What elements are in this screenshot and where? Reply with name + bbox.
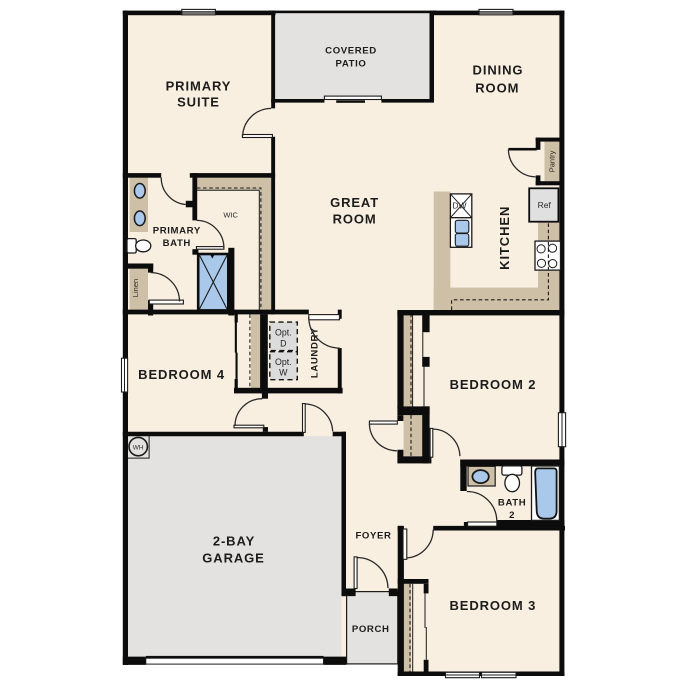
svg-text:DINING: DINING [473,63,524,78]
svg-text:SUITE: SUITE [177,95,220,110]
svg-text:BEDROOM 2: BEDROOM 2 [450,377,537,392]
svg-text:Linen: Linen [131,279,140,297]
svg-text:Opt.: Opt. [275,357,292,367]
svg-text:WIC: WIC [223,210,238,219]
svg-text:PATIO: PATIO [336,59,367,70]
svg-text:GARAGE: GARAGE [202,551,264,566]
svg-text:W: W [279,367,288,377]
svg-text:GREAT: GREAT [330,195,379,210]
svg-text:Pantry: Pantry [548,150,557,172]
svg-text:LAUNDRY: LAUNDRY [310,327,321,378]
svg-text:D: D [280,339,286,349]
svg-text:BATH: BATH [163,238,191,249]
svg-text:BEDROOM 3: BEDROOM 3 [449,598,536,613]
svg-text:COVERED: COVERED [325,46,377,57]
svg-text:PRIMARY: PRIMARY [166,79,232,94]
svg-text:2: 2 [509,510,515,521]
svg-text:WH: WH [133,444,144,451]
svg-text:Opt.: Opt. [275,328,292,338]
svg-text:BEDROOM 4: BEDROOM 4 [138,367,225,382]
svg-text:FOYER: FOYER [355,531,391,542]
svg-text:BATH: BATH [498,498,526,509]
svg-text:ROOM: ROOM [333,212,377,227]
svg-text:DW: DW [452,201,466,211]
svg-text:KITCHEN: KITCHEN [497,206,512,270]
svg-text:PRIMARY: PRIMARY [153,226,201,237]
svg-text:PORCH: PORCH [352,624,390,635]
svg-text:ROOM: ROOM [475,81,519,96]
svg-text:2-BAY: 2-BAY [213,534,255,549]
svg-text:Ref: Ref [538,200,552,210]
